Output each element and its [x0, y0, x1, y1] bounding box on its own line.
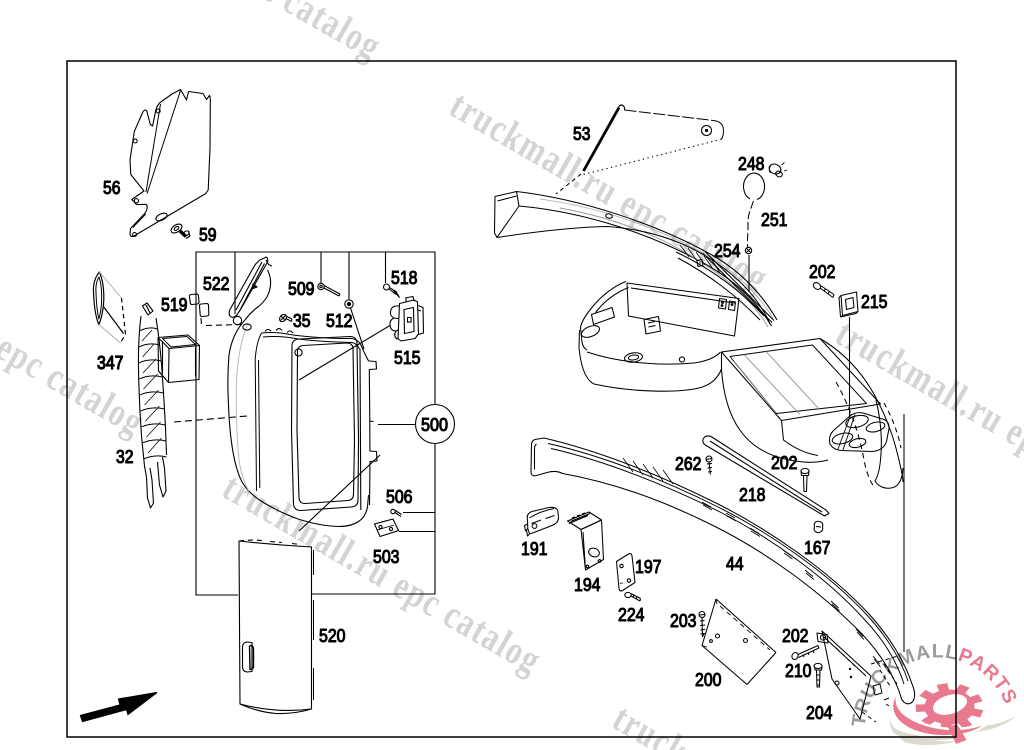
- svg-text:500: 500: [421, 414, 448, 435]
- svg-text:512: 512: [326, 310, 353, 331]
- svg-text:35: 35: [293, 310, 311, 331]
- svg-text:200: 200: [695, 669, 722, 690]
- svg-text:203: 203: [670, 610, 697, 631]
- svg-text:210: 210: [785, 660, 812, 681]
- svg-text:32: 32: [116, 446, 134, 467]
- svg-text:509: 509: [288, 278, 315, 299]
- svg-text:248: 248: [738, 153, 765, 174]
- svg-text:503: 503: [373, 546, 400, 567]
- svg-text:520: 520: [319, 625, 346, 646]
- svg-text:215: 215: [861, 291, 888, 312]
- svg-text:56: 56: [103, 177, 121, 198]
- svg-text:202: 202: [809, 261, 836, 282]
- svg-text:224: 224: [618, 604, 645, 625]
- svg-text:44: 44: [726, 553, 744, 574]
- svg-text:191: 191: [521, 538, 548, 559]
- svg-text:262: 262: [675, 453, 702, 474]
- svg-text:254: 254: [714, 240, 741, 261]
- svg-text:515: 515: [394, 347, 421, 368]
- svg-text:197: 197: [635, 556, 662, 577]
- svg-text:202: 202: [771, 452, 798, 473]
- svg-text:167: 167: [804, 537, 831, 558]
- svg-text:53: 53: [573, 123, 591, 144]
- svg-text:522: 522: [203, 273, 230, 294]
- svg-text:202: 202: [782, 625, 809, 646]
- svg-text:518: 518: [391, 267, 418, 288]
- svg-text:251: 251: [761, 209, 788, 230]
- svg-text:506: 506: [386, 486, 413, 507]
- svg-text:347: 347: [97, 352, 124, 373]
- svg-text:59: 59: [199, 224, 217, 245]
- svg-text:218: 218: [739, 484, 766, 505]
- svg-text:194: 194: [574, 574, 601, 595]
- svg-text:519: 519: [161, 294, 188, 315]
- svg-text:204: 204: [806, 702, 833, 723]
